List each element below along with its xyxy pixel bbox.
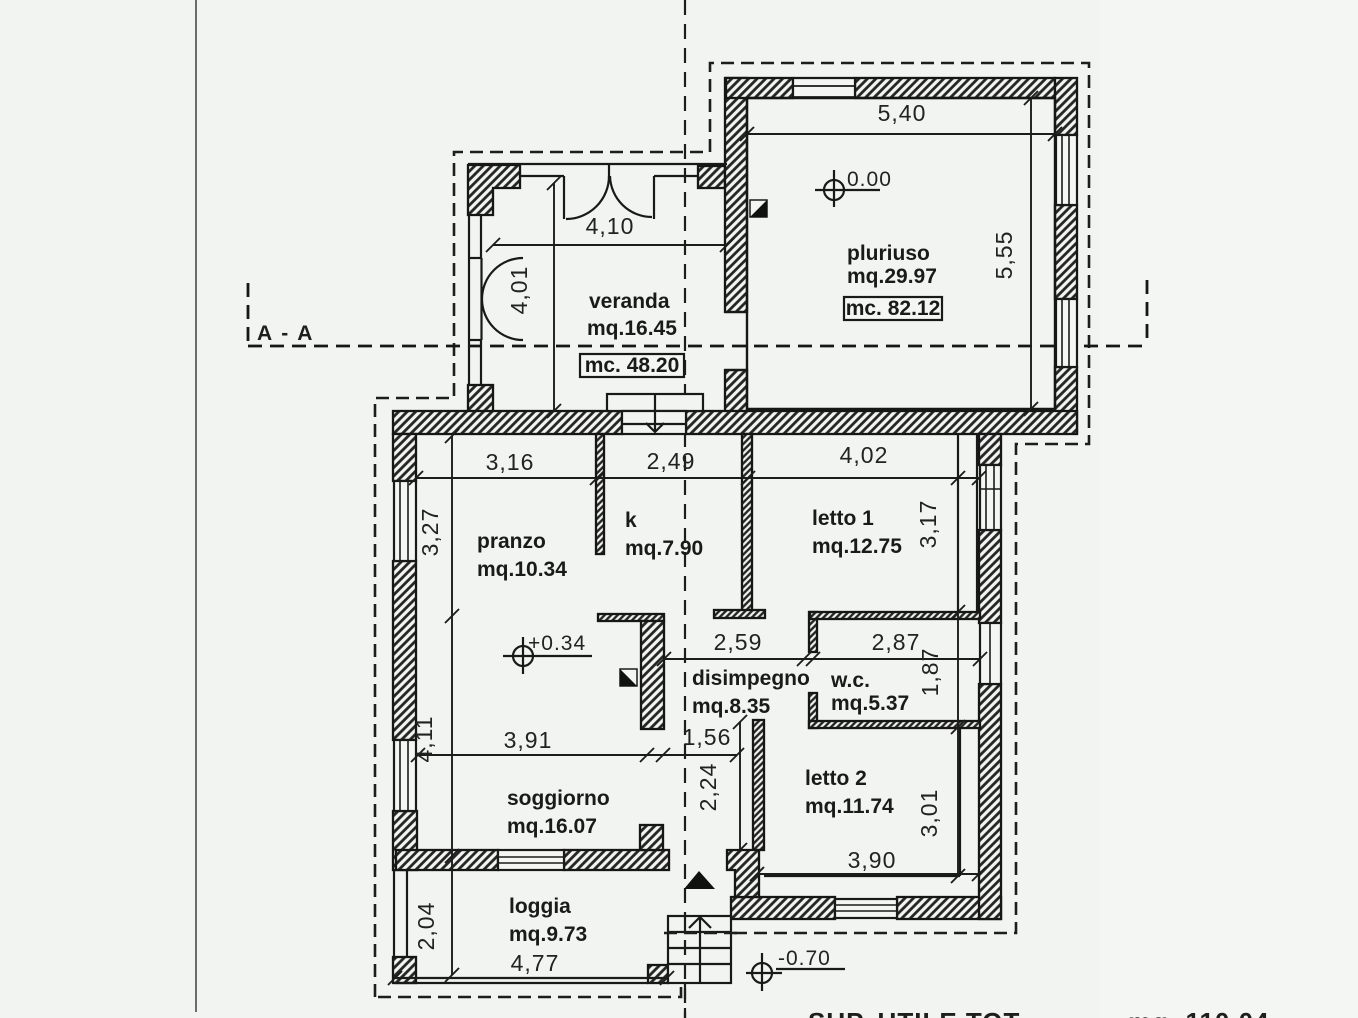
svg-text:2,87: 2,87 <box>872 629 921 655</box>
svg-text:4,77: 4,77 <box>511 950 560 976</box>
svg-text:mc. 48.20: mc. 48.20 <box>585 354 680 377</box>
svg-text:disimpegno: disimpegno <box>692 667 810 690</box>
svg-text:4,10: 4,10 <box>586 213 635 239</box>
svg-text:mq.10.34: mq.10.34 <box>477 558 567 581</box>
svg-text:4,02: 4,02 <box>840 442 889 468</box>
svg-text:+0.34: +0.34 <box>528 632 586 655</box>
svg-text:-0.70: -0.70 <box>778 947 831 970</box>
svg-text:5,40: 5,40 <box>878 100 927 126</box>
svg-text:3,27: 3,27 <box>417 508 443 557</box>
svg-text:1,87: 1,87 <box>917 648 943 697</box>
svg-text:mq.11.74: mq.11.74 <box>805 795 894 818</box>
svg-text:3,90: 3,90 <box>848 847 897 873</box>
svg-text:2,49: 2,49 <box>647 448 696 474</box>
svg-text:pranzo: pranzo <box>477 530 546 553</box>
svg-text:k: k <box>625 509 637 532</box>
svg-text:mq.16.45: mq.16.45 <box>587 317 677 340</box>
svg-text:mq.8.35: mq.8.35 <box>692 695 771 718</box>
svg-text:soggiorno: soggiorno <box>507 787 610 810</box>
svg-text:5,55: 5,55 <box>991 231 1017 280</box>
svg-text:4,11: 4,11 <box>411 715 437 762</box>
svg-text:mq.29.97: mq.29.97 <box>847 265 937 288</box>
svg-text:SUP. UTILE TOT.: SUP. UTILE TOT. <box>808 1007 1026 1018</box>
svg-text:3,01: 3,01 <box>916 789 942 838</box>
svg-text:mq.16.07: mq.16.07 <box>507 815 597 838</box>
svg-text:3,16: 3,16 <box>486 449 535 475</box>
svg-text:2,04: 2,04 <box>413 902 439 951</box>
svg-text:w.c.: w.c. <box>830 669 870 692</box>
svg-text:A - A: A - A <box>257 322 314 345</box>
svg-text:pluriuso: pluriuso <box>847 242 930 265</box>
svg-text:letto 1: letto 1 <box>812 507 874 530</box>
svg-text:3,91: 3,91 <box>504 727 553 753</box>
svg-text:2,59: 2,59 <box>714 629 763 655</box>
svg-text:3,17: 3,17 <box>915 500 941 549</box>
svg-text:mq.9.73: mq.9.73 <box>509 923 587 946</box>
svg-text:mq.7.90: mq.7.90 <box>625 537 703 560</box>
svg-text:1,56: 1,56 <box>683 724 732 750</box>
svg-text:mq.12.75: mq.12.75 <box>812 535 902 558</box>
svg-text:veranda: veranda <box>589 290 670 313</box>
svg-text:mq. 110.04: mq. 110.04 <box>1128 1007 1270 1018</box>
svg-text:2,24: 2,24 <box>695 763 721 812</box>
svg-text:loggia: loggia <box>509 895 571 918</box>
svg-text:mc. 82.12: mc. 82.12 <box>846 297 941 320</box>
svg-text:mq.5.37: mq.5.37 <box>831 692 909 715</box>
svg-text:4,01: 4,01 <box>506 266 532 315</box>
svg-text:letto 2: letto 2 <box>805 767 867 790</box>
svg-text:0.00: 0.00 <box>847 168 892 191</box>
